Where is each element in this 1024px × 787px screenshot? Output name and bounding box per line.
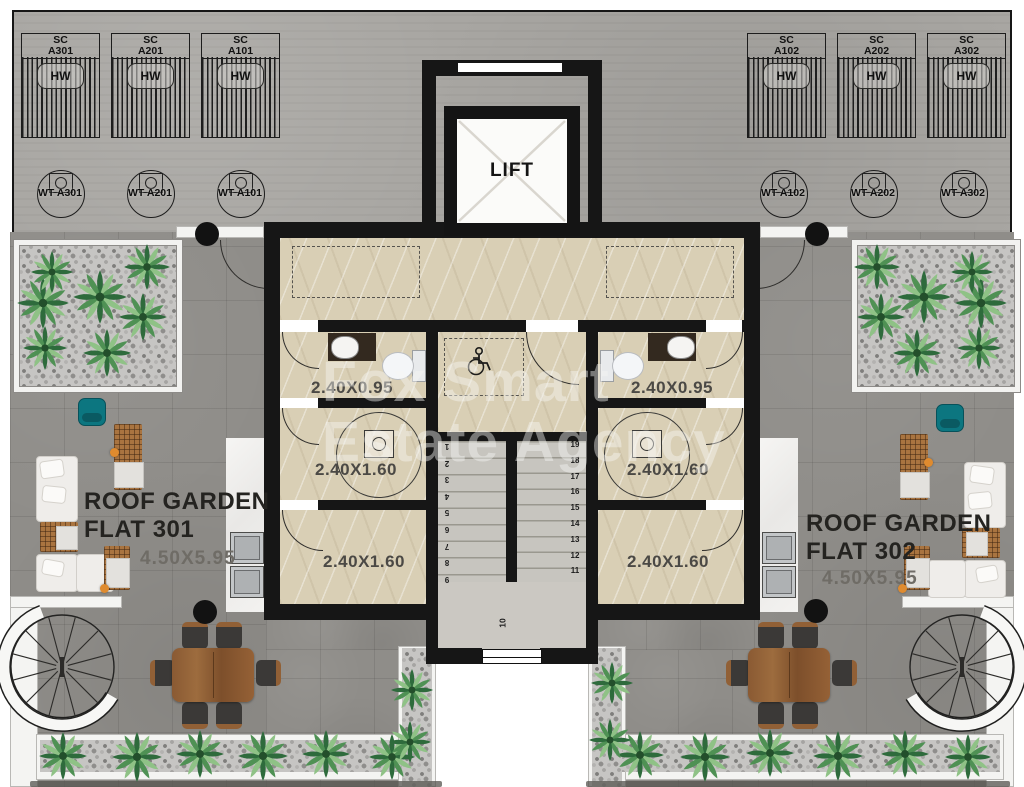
- stair-tread-number: 1: [440, 442, 454, 451]
- core-wall-east: [744, 222, 760, 620]
- solar-collector-panel: HW: [111, 57, 190, 138]
- water-tank-label: WT A201: [114, 187, 186, 199]
- solar-collector-header: SC A301: [21, 33, 100, 59]
- water-tank-label: WT A202: [837, 187, 909, 199]
- water-tank-label: WT A102: [747, 187, 819, 199]
- shower-tray-301: [364, 430, 394, 458]
- stair-tread-number: 13: [568, 535, 582, 544]
- stair-tread-number: 12: [568, 551, 582, 560]
- dining-chair: [792, 702, 818, 729]
- shower-tray-302: [632, 430, 662, 458]
- room-dim-store-301: 2.40X1.60: [304, 552, 424, 572]
- planter-strip-bottom-right: [596, 740, 1000, 772]
- stair-tread-number: 8: [440, 558, 454, 567]
- partition-301-shower: [318, 500, 426, 510]
- corridor-bottom-wall-3: [578, 320, 586, 332]
- cushion-ball: [110, 448, 119, 457]
- stair-tread-number: 14: [568, 519, 582, 528]
- solar-collector-panel: HW: [201, 57, 280, 138]
- sc-id: A102: [774, 46, 799, 57]
- water-tank-label: WT A101: [204, 187, 276, 199]
- terrace-door-gap-right: [760, 226, 848, 238]
- hot-water-tag: HW: [763, 63, 810, 89]
- partition-302-shower: [598, 500, 706, 510]
- lift-shaft-wall-right: [588, 60, 602, 238]
- corridor-bottom-wall-4: [586, 320, 706, 332]
- stair-tread-number: 15: [568, 503, 582, 512]
- hot-water-tag: HW: [853, 63, 900, 89]
- stair-tread-number: 5: [440, 508, 454, 517]
- stair-tread-number: 2: [440, 459, 454, 468]
- planter-garden-left: [14, 240, 182, 392]
- room-dim-shower-302: 2.40X1.60: [608, 460, 728, 480]
- lounger-cushion: [114, 462, 144, 488]
- flat-302-title: ROOF GARDEN FLAT 302: [806, 510, 992, 566]
- sc-id: A201: [138, 46, 163, 57]
- pillow: [41, 485, 67, 504]
- toilet-301: [382, 352, 414, 380]
- stair-tread-number: 3: [440, 475, 454, 484]
- dining-chair: [792, 622, 818, 649]
- lift-shaft-wall-left: [422, 60, 436, 238]
- cushion-ball: [924, 458, 933, 467]
- walkway-left-top: [10, 596, 122, 608]
- hot-water-tag: HW: [217, 63, 264, 89]
- core-wall-west: [264, 222, 280, 620]
- flat-301-title-line1: ROOF GARDEN: [84, 488, 270, 516]
- dining-chair: [182, 702, 208, 729]
- corridor-stub-right: [684, 222, 760, 238]
- sc-id: A302: [954, 46, 979, 57]
- flat-302-title-line1: ROOF GARDEN: [806, 510, 992, 538]
- flat-302-dims: 4.50X5.95: [822, 568, 918, 590]
- lightwell-void: [432, 662, 592, 787]
- sc-id: A101: [228, 46, 253, 57]
- lounge-chair-teal: [936, 404, 964, 432]
- column-dot: [193, 600, 217, 624]
- dining-chair: [216, 702, 242, 729]
- lounge-chair-teal: [78, 398, 106, 426]
- solar-collector-panel: HW: [837, 57, 916, 138]
- side-lounger-mat: [106, 558, 130, 588]
- corridor-bottom-wall-5: [742, 320, 746, 332]
- stair-tread-number: 7: [440, 542, 454, 551]
- skylight-dashed-left: [292, 246, 420, 298]
- edge-shadow-right: [586, 781, 1010, 787]
- sink-301-b: [230, 566, 264, 598]
- dining-chair: [182, 622, 208, 649]
- cushion-ball: [100, 584, 109, 593]
- stair-tread-number: 18: [568, 456, 582, 465]
- stair-tread-number: 19: [568, 440, 582, 449]
- toilet-302: [612, 352, 644, 380]
- column-dot: [804, 599, 828, 623]
- solar-collector-panel: HW: [747, 57, 826, 138]
- stair-landing: [438, 582, 586, 650]
- skylight-dashed-right: [606, 246, 734, 298]
- solar-collector-header: SC A202: [837, 33, 916, 59]
- stair-tread-number: 9: [440, 575, 454, 584]
- sc-id: A202: [864, 46, 889, 57]
- flat-302-title-line2: FLAT 302: [806, 538, 992, 566]
- column-dot: [805, 222, 829, 246]
- edge-shadow-left: [30, 781, 442, 787]
- dining-chair: [758, 702, 784, 729]
- corridor-stub-left: [264, 222, 290, 238]
- terrace-door-gap-left: [176, 226, 264, 238]
- hot-water-tag: HW: [943, 63, 990, 89]
- stair-number-10: 10: [498, 618, 508, 627]
- toilet-tank-301: [412, 350, 426, 382]
- lounger-cushion: [900, 472, 930, 498]
- stair-numbers-down: 191817161514131211: [568, 441, 584, 582]
- stair-tread-number: 16: [568, 487, 582, 496]
- stair-tread-number: 11: [568, 566, 582, 575]
- accessible-zone-dashed: [444, 338, 524, 396]
- stair-tread-number: 4: [440, 492, 454, 501]
- dining-table: [172, 648, 254, 702]
- sink-302-b: [762, 566, 796, 598]
- pillow: [967, 491, 993, 510]
- stair-divider: [506, 436, 517, 582]
- vanity-301: [328, 333, 376, 361]
- washbasin-icon: [667, 336, 695, 359]
- stair-window: [482, 649, 542, 664]
- hall-bottom-wall-2: [540, 648, 598, 664]
- dining-chair: [216, 622, 242, 649]
- room-dim-bath-301: 2.40X0.95: [292, 378, 412, 398]
- solar-collector-header: SC A101: [201, 33, 280, 59]
- planter-strip-bottom-left: [40, 740, 428, 772]
- core-bottom-wall-right: [586, 604, 760, 620]
- corridor-bottom-wall-1: [318, 320, 438, 332]
- stair-numbers-up: 123456789: [440, 441, 456, 582]
- dining-chair: [758, 622, 784, 649]
- water-tank-label: WT A302: [927, 187, 999, 199]
- lift-label: LIFT: [446, 160, 578, 182]
- solar-collector-header: SC A302: [927, 33, 1006, 59]
- walkway-left-edge: [10, 596, 38, 787]
- planter-strip-vleft: [402, 648, 432, 787]
- corridor-bottom-wall-2: [438, 320, 526, 332]
- dining-chair: [256, 660, 281, 686]
- partition-302-bath: [598, 398, 706, 408]
- water-tank-label: WT A301: [24, 187, 96, 199]
- room-dim-shower-301: 2.40X1.60: [296, 460, 416, 480]
- sc-id: A301: [48, 46, 73, 57]
- hot-water-tag: HW: [37, 63, 84, 89]
- dining-table: [748, 648, 830, 702]
- hot-water-tag: HW: [127, 63, 174, 89]
- pillow: [39, 458, 65, 479]
- pillow: [969, 464, 995, 485]
- coffee-table-tray: [56, 526, 78, 550]
- solar-collector-panel: HW: [21, 57, 100, 138]
- stair-tread-number: 17: [568, 472, 582, 481]
- flat-301-title-line2: FLAT 301: [84, 516, 270, 544]
- washbasin-icon: [331, 336, 359, 359]
- dining-chair: [832, 660, 857, 686]
- lift-door-gap: [458, 63, 562, 72]
- solar-collector-header: SC A102: [747, 33, 826, 59]
- planter-garden-right: [852, 240, 1020, 392]
- room-dim-store-302: 2.40X1.60: [608, 552, 728, 572]
- solar-collector-header: SC A201: [111, 33, 190, 59]
- floor-plan: SC A301 HW SC A201 HW SC A101 HW SC A102…: [0, 0, 1024, 787]
- column-dot: [195, 222, 219, 246]
- room-dim-bath-302: 2.40X0.95: [612, 378, 732, 398]
- sink-302-a: [762, 532, 796, 564]
- hall-bottom-wall-1: [426, 648, 482, 664]
- solar-collector-panel: HW: [927, 57, 1006, 138]
- flat-301-dims: 4.50X5.95: [140, 548, 236, 570]
- stair-tread-number: 6: [440, 525, 454, 534]
- core-bottom-wall-left: [264, 604, 438, 620]
- flat-301-title: ROOF GARDEN FLAT 301: [84, 488, 270, 544]
- partition-301-bath: [318, 398, 426, 408]
- planter-strip-vright: [592, 648, 622, 787]
- vanity-302: [648, 333, 696, 361]
